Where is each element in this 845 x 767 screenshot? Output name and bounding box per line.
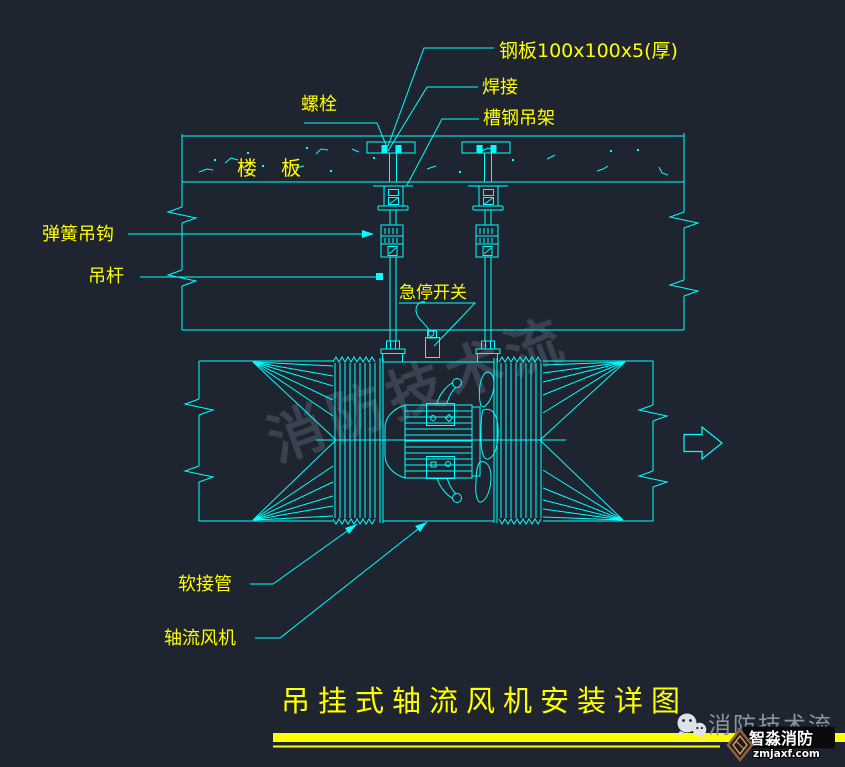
motor-mount-bottom [427,457,462,503]
welding-label: 焊接 [482,77,518,98]
airflow-arrow-icon [684,427,722,459]
floor-slab-label: 楼板 [237,156,325,180]
channel-hanger-label: 槽钢吊架 [483,108,555,129]
axial-fan-label: 轴流风机 [164,628,236,649]
brand-name: 智淼消防 [749,729,813,748]
duct-right [540,361,667,521]
embedded-steel-plate [367,142,415,153]
hanger-rod-line [390,257,396,341]
spring-hook-label: 弹簧吊钩 [42,224,114,245]
title-underline-thin [273,746,720,748]
bolt-label: 螺栓 [301,94,337,115]
flexible-connector-label: 软接管 [178,574,232,595]
annotation-labels: 钢板100x100x5(厚) 焊接 槽钢吊架 螺栓 弹簧吊钩 吊杆 急停开关 软… [42,40,678,649]
spring-hanger-box [381,225,403,257]
channel-steel-bracket [373,186,413,210]
steel-plate-label: 钢板100x100x5(厚) [499,40,678,62]
emergency-stop-label: 急停开关 [399,283,467,303]
brand-domain: zmjaxf.com [753,748,820,760]
cad-canvas: 消防技术流 楼板 [0,0,845,767]
rod-nut-mount [381,341,405,362]
drawing-title: 吊挂式轴流风机安装详图 [281,684,688,718]
cad-drawing: 消防技术流 楼板 [0,0,845,767]
hanger-rod-label: 吊杆 [88,266,124,287]
watermark-text: 消防技术流 [260,306,578,475]
hanger-assembly-left [367,142,415,362]
